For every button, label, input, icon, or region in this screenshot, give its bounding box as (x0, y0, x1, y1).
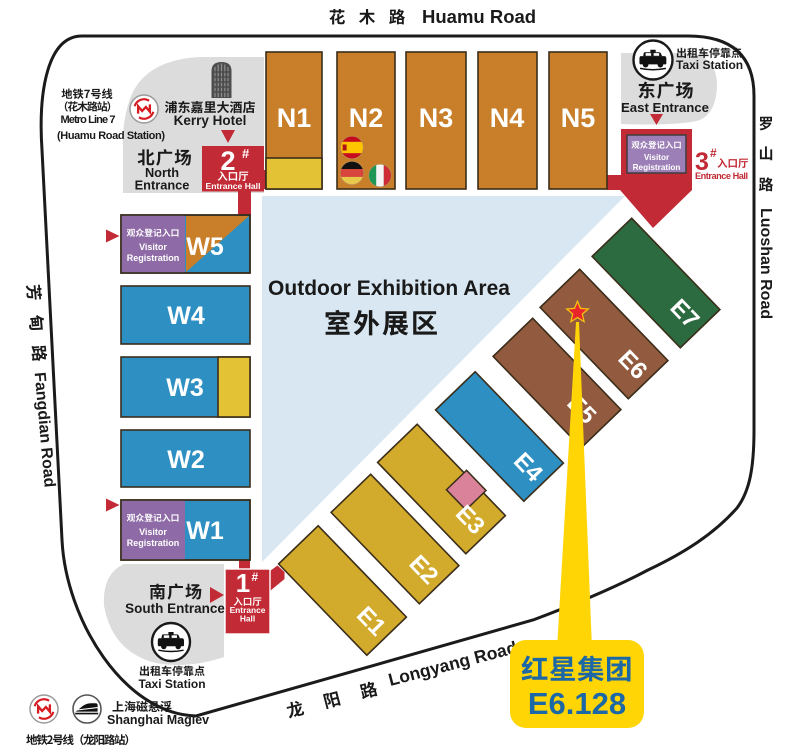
svg-text:Luoshan Road: Luoshan Road (757, 208, 774, 319)
svg-text:Entrance Hall: Entrance Hall (206, 181, 261, 191)
svg-text:#: # (710, 146, 717, 160)
svg-text:W2: W2 (167, 446, 205, 474)
svg-text:N2: N2 (349, 103, 384, 133)
svg-text:Entrance: Entrance (135, 178, 190, 193)
svg-text:Taxi Station: Taxi Station (676, 58, 743, 72)
svg-text:N5: N5 (561, 103, 596, 133)
svg-text:W1: W1 (186, 517, 224, 545)
svg-text:Outdoor Exhibition Area: Outdoor Exhibition Area (268, 277, 510, 300)
svg-text:Longyang Road: Longyang Road (386, 637, 519, 690)
svg-text:South Entrance: South Entrance (125, 601, 225, 616)
svg-text:W4: W4 (167, 302, 205, 330)
svg-text:Huamu Road: Huamu Road (422, 6, 536, 27)
svg-text:E6.128: E6.128 (528, 686, 626, 721)
svg-text:1: 1 (236, 568, 250, 598)
svg-text:Visitor: Visitor (139, 527, 167, 537)
svg-text:2: 2 (220, 146, 235, 176)
svg-text:Registration: Registration (633, 163, 681, 172)
svg-text:Registration: Registration (127, 253, 180, 263)
svg-text:Kerry Hotel: Kerry Hotel (174, 113, 247, 128)
svg-text:Shanghai Maglev: Shanghai Maglev (107, 713, 209, 727)
svg-text:#: # (242, 146, 250, 161)
svg-text:N1: N1 (277, 103, 312, 133)
svg-text:Visitor: Visitor (139, 242, 167, 252)
svg-text:W3: W3 (166, 374, 204, 402)
svg-text:#: # (252, 570, 259, 584)
svg-text:Taxi Station: Taxi Station (138, 677, 205, 691)
svg-text:N3: N3 (419, 103, 454, 133)
svg-text:W5: W5 (186, 233, 224, 261)
svg-text:Hall: Hall (240, 614, 255, 624)
svg-text:(Huamu Road Station): (Huamu Road Station) (57, 130, 165, 142)
svg-text:Visitor: Visitor (644, 153, 670, 162)
svg-text:N4: N4 (490, 103, 525, 133)
svg-text:Entrance Hall: Entrance Hall (695, 171, 748, 181)
svg-text:East Entrance: East Entrance (621, 100, 709, 115)
svg-text:Registration: Registration (127, 538, 180, 548)
svg-text:Metro Line 7: Metro Line 7 (61, 114, 116, 126)
